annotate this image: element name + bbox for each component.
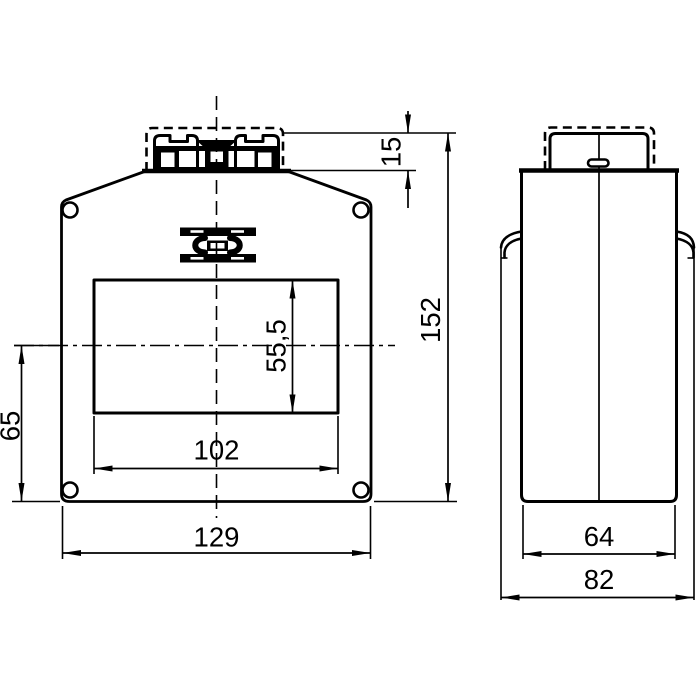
dim-terminal-height: 15 [284, 111, 456, 208]
dim-label-overall-height: 152 [415, 297, 446, 343]
dim-label-window-height: 55,5 [261, 319, 292, 373]
clip-left-inner-hook [505, 239, 522, 258]
dim-label-center-to-bottom: 65 [0, 411, 26, 442]
dim-label-window-width: 102 [194, 435, 240, 466]
clip-right-inner-hook [677, 239, 694, 258]
technical-drawing: 15 152 55,5 65 102 129 64 [0, 0, 700, 700]
spool-top-bar-slit-right [231, 230, 244, 233]
spool-bottom-bar-slit-right [231, 257, 244, 260]
dim-overall-width: 129 [63, 506, 371, 559]
spool-jaw-left [195, 238, 205, 253]
mounting-clip-left [501, 232, 522, 601]
mounting-clip-right [677, 232, 695, 601]
side-terminal-slot [588, 160, 609, 167]
mounting-hole-top-left [63, 203, 78, 218]
spool-symbol [180, 228, 256, 263]
terminal-window-2 [179, 151, 205, 167]
dim-side-body-width: 64 [523, 505, 675, 559]
terminal-window-1 [161, 153, 175, 168]
spool-jaw-right [230, 238, 240, 253]
mounting-hole-bottom-right [354, 483, 369, 498]
terminal-block-front [147, 128, 284, 171]
dim-window-height: 55,5 [261, 280, 293, 413]
dim-label-overall-width: 129 [194, 522, 240, 553]
mounting-hole-top-right [354, 203, 369, 218]
dim-label-terminal-height: 15 [376, 137, 407, 168]
terminal-window-3 [229, 151, 255, 167]
dim-label-side-overall-width: 82 [584, 564, 615, 595]
dim-label-side-body-width: 64 [584, 521, 615, 552]
mounting-hole-bottom-left [63, 483, 78, 498]
spool-bottom-bar-slit-left [191, 257, 204, 260]
dim-overall-height: 152 [374, 133, 457, 502]
dim-side-overall-width: 82 [501, 564, 694, 598]
terminal-window-4 [258, 153, 272, 168]
dim-center-to-bottom: 65 [0, 346, 60, 502]
spool-center-window [211, 243, 225, 249]
spool-top-bar-slit-left [191, 230, 204, 233]
